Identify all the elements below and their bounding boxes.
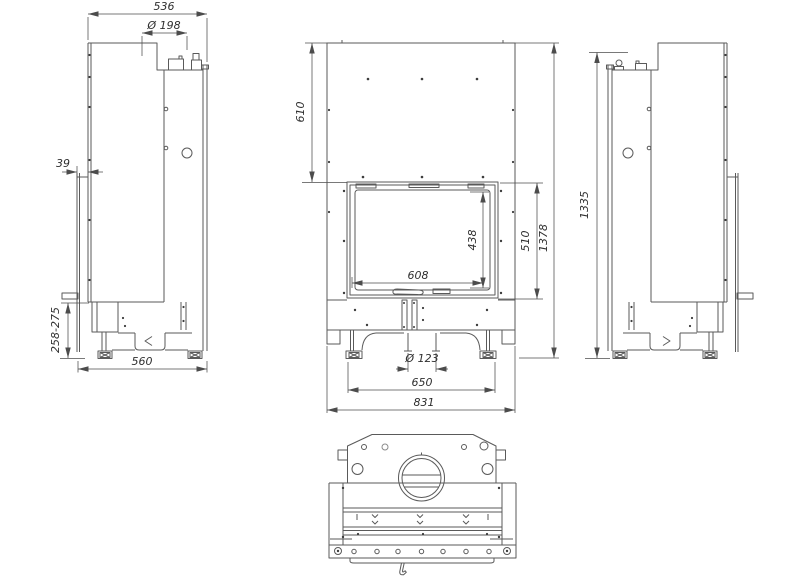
knob-base	[192, 60, 202, 70]
dim-label-831: 831	[414, 396, 435, 409]
foot	[703, 351, 717, 359]
technical-drawing-page: 536 Ø 198 39 258-275 560	[0, 0, 800, 580]
damper-lever-tab	[636, 61, 639, 64]
lower-compartment	[92, 302, 118, 332]
top-view	[329, 435, 516, 575]
side-tab	[338, 450, 348, 460]
dim-label-1378: 1378	[537, 224, 550, 252]
knob-top	[616, 60, 622, 66]
dim-glass-height: 438	[466, 192, 489, 288]
panel-hole	[647, 107, 651, 111]
side-flange	[327, 330, 340, 344]
plate-hole	[480, 442, 488, 450]
strip-hole	[352, 549, 356, 553]
top-profile	[612, 43, 727, 70]
side-flange	[502, 330, 515, 344]
duct-chevron	[663, 337, 670, 346]
corner-hole	[352, 464, 363, 475]
strip-hole	[396, 549, 400, 553]
lower-compartment	[697, 302, 723, 332]
rear-bracket	[737, 293, 753, 299]
panel-hole	[647, 146, 651, 150]
damper-lever	[636, 64, 647, 71]
air-duct-recess	[135, 333, 165, 350]
dim-label-o123: Ø 123	[404, 352, 438, 365]
dim-label-610: 610	[294, 102, 307, 123]
dim-base-height: 258-275	[49, 303, 89, 359]
side-port-hole	[182, 148, 192, 158]
dim-top-to-door: 610	[294, 43, 347, 183]
damper-lever-tab	[179, 56, 182, 59]
knob-base	[615, 67, 624, 71]
strip-hole	[487, 549, 491, 553]
dim-flue-diameter: Ø 198	[142, 19, 187, 56]
fireplace-insert-drawing: 536 Ø 198 39 258-275 560	[0, 0, 800, 580]
front-view: 610 438 608 510 1378 Ø 123	[294, 40, 559, 413]
duct-chevron	[145, 337, 152, 346]
foot	[346, 351, 362, 359]
front-view-body	[327, 40, 515, 359]
dim-label-258-275: 258-275	[49, 307, 62, 353]
air-duct-recess	[650, 333, 680, 350]
panel-hole	[164, 107, 168, 111]
strip-hole	[441, 549, 445, 553]
dim-feet-spacing: 650	[348, 362, 495, 393]
dim-label-438: 438	[466, 230, 479, 251]
dim-air-inlet: Ø 123	[396, 352, 448, 372]
center-pillar	[412, 300, 417, 330]
top-profile	[88, 43, 203, 70]
dim-glass-width: 608	[352, 269, 483, 288]
panel-hole	[164, 146, 168, 150]
foot	[98, 351, 112, 359]
foot	[613, 351, 627, 359]
tray-handle	[400, 563, 407, 575]
damper-lever	[169, 59, 184, 70]
knob-top	[193, 54, 199, 61]
rear-bracket	[62, 293, 78, 299]
plate-hole	[362, 445, 367, 450]
left-view-body	[62, 43, 209, 359]
side-port-hole	[623, 148, 633, 158]
dim-label-39: 39	[56, 157, 70, 170]
dim-label-510: 510	[519, 231, 532, 252]
foot	[188, 351, 202, 359]
dim-label-1335: 1335	[578, 191, 591, 219]
foot	[480, 351, 496, 359]
dim-label-560: 560	[132, 355, 153, 368]
strip-hole	[375, 549, 379, 553]
plate-hole	[462, 445, 467, 450]
right-view-body	[607, 43, 754, 359]
dim-label-608: 608	[408, 269, 429, 282]
side-tab	[496, 450, 506, 460]
dim-label-536: 536	[154, 0, 175, 13]
mounting-strip	[329, 545, 516, 558]
plate-hole	[382, 444, 388, 450]
left-side-view: 536 Ø 198 39 258-275 560	[49, 0, 209, 373]
strip-hole	[464, 549, 468, 553]
dim-label-flue: Ø 198	[146, 19, 180, 32]
dim-body-height: 1335	[578, 53, 628, 359]
top-view-shell	[329, 483, 516, 545]
front-tray	[350, 558, 494, 563]
center-pillar	[402, 300, 407, 330]
dim-label-650: 650	[412, 376, 433, 389]
right-side-view: 1335	[578, 43, 753, 359]
flue-outlet	[399, 453, 445, 502]
strip-hole	[419, 549, 423, 553]
corner-hole	[482, 464, 493, 475]
